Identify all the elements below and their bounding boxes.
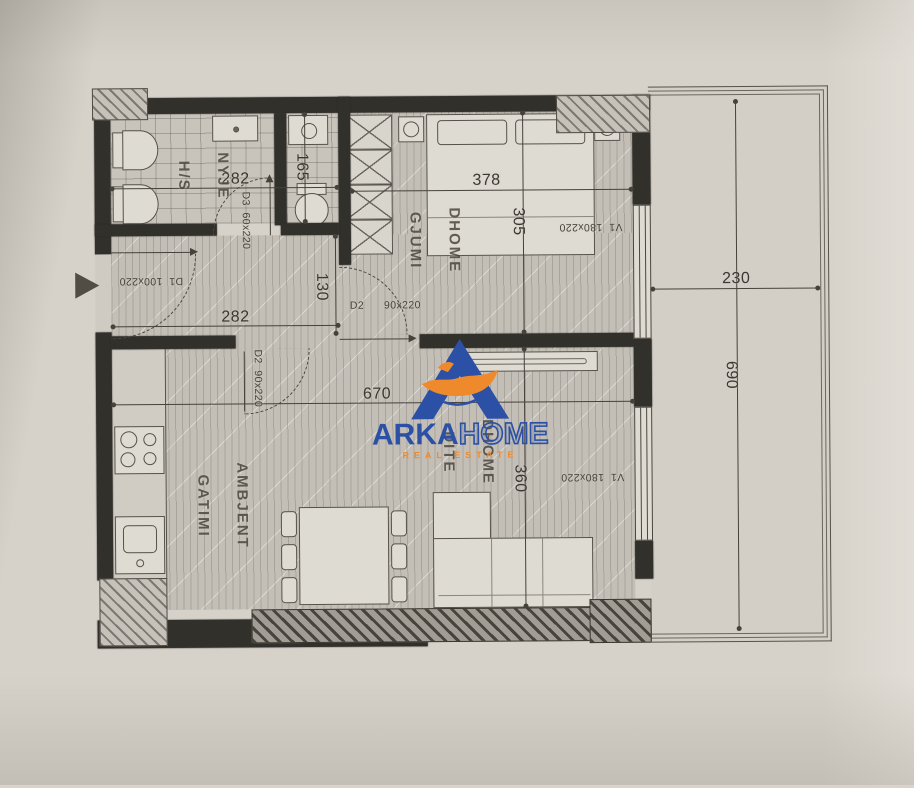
wall-left (96, 332, 114, 580)
dim-terrace-width: 230 (722, 270, 750, 288)
door-label-d3: D3 60x220 (240, 192, 252, 250)
dim-hall-width: 282 (221, 308, 249, 326)
toilet (113, 184, 159, 224)
dim-bedroom-depth: 305 (509, 207, 527, 235)
burner-icon (143, 433, 156, 446)
column (92, 88, 148, 120)
watermark-logo: ARKAHOME REAL ESTATE (370, 337, 551, 463)
dim-utility-height: 165 (292, 153, 310, 181)
window-v1-bedroom (633, 205, 652, 339)
chair (281, 544, 297, 570)
sofa (433, 537, 593, 608)
dining-table (299, 506, 390, 605)
burner-icon (143, 452, 156, 465)
entry-arrow-icon (75, 272, 99, 298)
room-label-line: NYJE (215, 152, 232, 199)
chair (281, 511, 297, 537)
nightstand (398, 116, 424, 142)
door-label-d1: D1 100x220 (119, 275, 183, 287)
sink-basin (123, 525, 157, 553)
wall-right (635, 541, 653, 579)
room-label-line: DHOME (446, 207, 463, 273)
column (99, 578, 167, 646)
wall-right (634, 339, 652, 407)
burner-icon (120, 431, 137, 448)
door-label-d2-living: D2 90x220 (252, 349, 264, 407)
wall-bathroom-bottom (95, 224, 217, 237)
dim-terrace-depth: 690 (722, 361, 740, 389)
room-label-line: GJUMI (407, 212, 424, 270)
floor-plan: 282 165 378 305 282 130 670 360 230 690 … (0, 0, 914, 788)
room-label-kitchen: AMBJENT GATIMI (174, 438, 272, 549)
washing-machine (288, 115, 328, 145)
wall-utility-bottom (281, 223, 339, 235)
dim-hall-height: 130 (312, 273, 330, 301)
chair (391, 510, 407, 536)
logo-ark-icon (408, 338, 513, 421)
logo-wordmark-home: HOME (459, 417, 549, 451)
door-label-d2-bedroom: D2 90x220 (350, 299, 421, 311)
logo-wordmark-arka: ARKA (372, 418, 459, 452)
pillow (437, 120, 507, 145)
column (556, 95, 650, 134)
window-label-v1-living: V1 180x220 (561, 471, 624, 483)
room-label-line: AMBJENT (234, 462, 252, 549)
kitchen-sink (115, 516, 165, 574)
stove (114, 426, 164, 474)
column (589, 599, 651, 643)
chair (391, 576, 407, 602)
room-label-bedroom: DHOME GJUMI (386, 183, 484, 274)
chair (281, 577, 297, 603)
burner-icon (120, 452, 135, 467)
faucet-icon (136, 559, 144, 567)
window-label-v1-bedroom: V1 180x220 (559, 221, 622, 233)
wall-bathroom-divider (274, 113, 287, 225)
window-v1-living (634, 407, 653, 541)
wall-hall-stub (112, 336, 236, 350)
chair (391, 543, 407, 569)
room-label-line: H/S (176, 161, 193, 192)
toilet (112, 130, 158, 170)
room-label-bathroom: NYJE H/S (154, 127, 252, 200)
wall-utility-right (338, 97, 351, 265)
room-label-line: GATIMI (195, 474, 212, 538)
logo-tagline: REAL ESTATE (370, 449, 550, 460)
